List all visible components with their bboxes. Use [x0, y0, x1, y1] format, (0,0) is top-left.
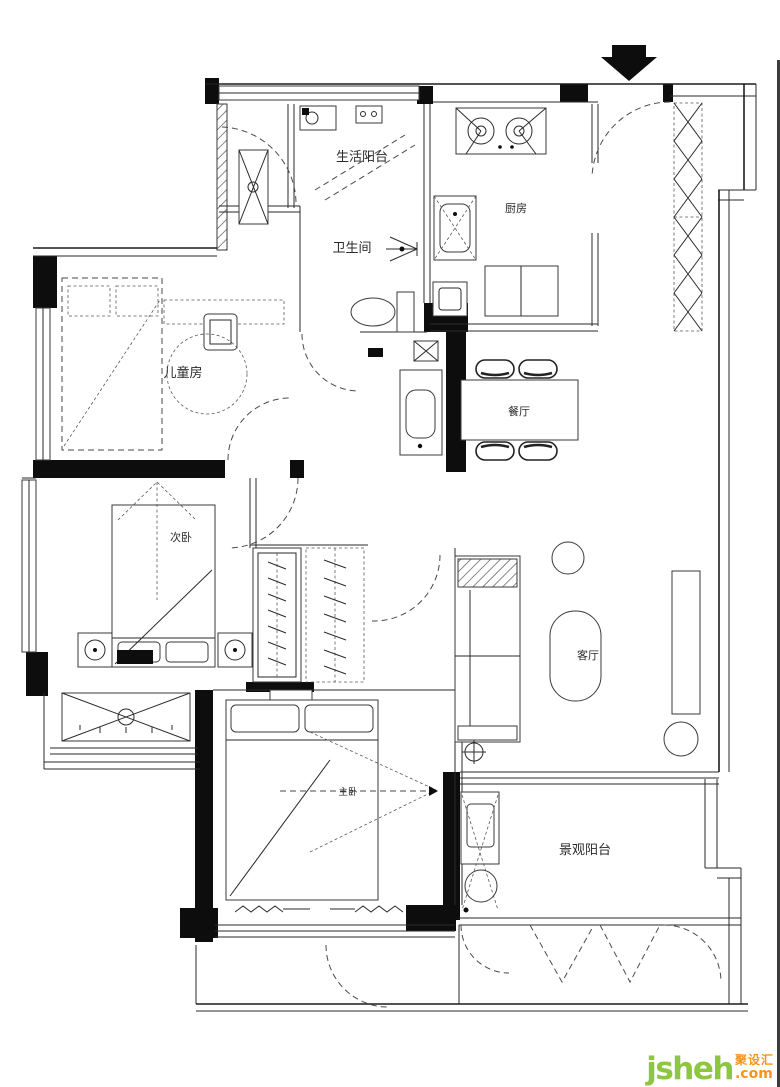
toilet-tank [397, 292, 414, 332]
small-sink [356, 106, 382, 123]
plant [552, 542, 584, 574]
toilet-bowl [351, 298, 395, 326]
dining-chair [519, 360, 557, 378]
label-second-bedroom: 次卧 [170, 530, 192, 544]
label-view-balcony: 景观阳台 [559, 843, 611, 858]
watermark-brand: jsheh [646, 1057, 733, 1081]
kids-desk [204, 314, 237, 350]
bed-bench [117, 650, 153, 664]
plant [664, 722, 698, 756]
floor-plan-drawing: 生活阳台 厨房 卫生间 儿童房 [0, 0, 780, 1087]
room-dining: 餐厅 [461, 360, 578, 460]
watermark-chinese: 聚设汇 [735, 1054, 774, 1066]
ceiling-fixture-icon [462, 740, 486, 764]
entry-arrow-icon [601, 45, 657, 81]
dining-chair [476, 442, 514, 460]
room-kitchen: 厨房 [433, 108, 558, 316]
label-master-bedroom: 主卧 [338, 786, 358, 798]
room-view-balcony: 景观阳台 [461, 792, 611, 913]
shower-icon [386, 237, 417, 261]
wardrobes [253, 548, 364, 702]
room-kids: 儿童房 [62, 278, 284, 450]
label-bathroom: 卫生间 [332, 241, 371, 256]
lattice-column [674, 103, 702, 331]
dining-chair [519, 442, 557, 460]
watermark-logo: jsheh 聚设汇 .com [640, 1052, 776, 1081]
label-dining: 餐厅 [508, 404, 530, 418]
dining-chair [476, 360, 514, 378]
tv-cabinet [672, 571, 700, 714]
label-kitchen: 厨房 [505, 202, 527, 215]
room-second-bedroom: 次卧 [62, 482, 252, 741]
label-living-room: 客厅 [577, 648, 599, 662]
room-bathroom: 卫生间 [332, 237, 417, 332]
watermark-suffix: .com [735, 1067, 773, 1081]
kitchen-lower-cabinet [433, 282, 467, 316]
room-master-bedroom: 主卧 [226, 700, 438, 912]
hall-washbasin [400, 341, 442, 455]
label-service-balcony: 生活阳台 [336, 150, 388, 165]
kids-bed [62, 278, 162, 450]
label-kids-room: 儿童房 [163, 365, 202, 381]
room-service-balcony: 生活阳台 [239, 106, 388, 224]
room-living: 客厅 [455, 542, 700, 764]
floor-plan: 生活阳台 厨房 卫生间 儿童房 [0, 0, 780, 1087]
